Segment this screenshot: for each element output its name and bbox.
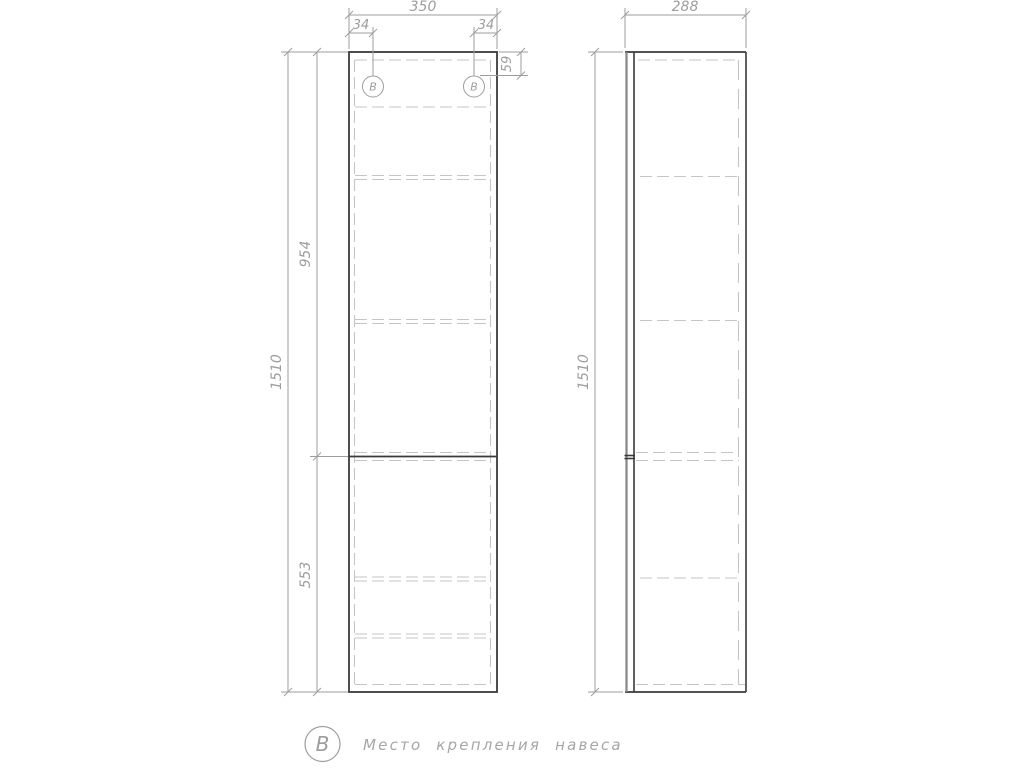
- front-view: 350 34 34 59 954 553 1510 В В: [269, 0, 528, 696]
- dim-label-hole-left: 34: [353, 18, 370, 33]
- dim-label-lower: 553: [298, 562, 314, 589]
- front-mount-markers: В В: [363, 76, 485, 97]
- front-dimensions: 350 34 34 59 954 553 1510: [269, 0, 528, 696]
- dim-label-hole-right: 34: [478, 18, 495, 33]
- front-cabinet-box: [349, 52, 497, 692]
- dim-label-total: 1510: [576, 354, 592, 390]
- technical-drawing: 350 34 34 59 954 553 1510 В В: [0, 0, 1024, 768]
- dim-label-hole-top: 59: [500, 56, 515, 73]
- dim-label-total: 1510: [269, 354, 285, 390]
- side-view: 288 1510: [576, 0, 750, 696]
- mount-marker-label-right: В: [470, 81, 478, 94]
- side-dimensions: 288 1510: [576, 0, 750, 696]
- front-hidden-edges: [355, 60, 491, 685]
- side-hidden-edges: [636, 60, 745, 685]
- front-cabinet-outline: [349, 52, 497, 692]
- legend-symbol: В: [316, 732, 330, 756]
- legend-caption: Место крепления навеса: [363, 736, 623, 754]
- legend: В Место крепления навеса: [305, 727, 623, 762]
- dim-label-upper: 954: [298, 241, 314, 268]
- mount-marker-label-left: В: [369, 81, 377, 94]
- side-cabinet-outline: [625, 52, 747, 692]
- dim-label-width: 350: [410, 0, 437, 15]
- dim-label-depth: 288: [672, 0, 699, 15]
